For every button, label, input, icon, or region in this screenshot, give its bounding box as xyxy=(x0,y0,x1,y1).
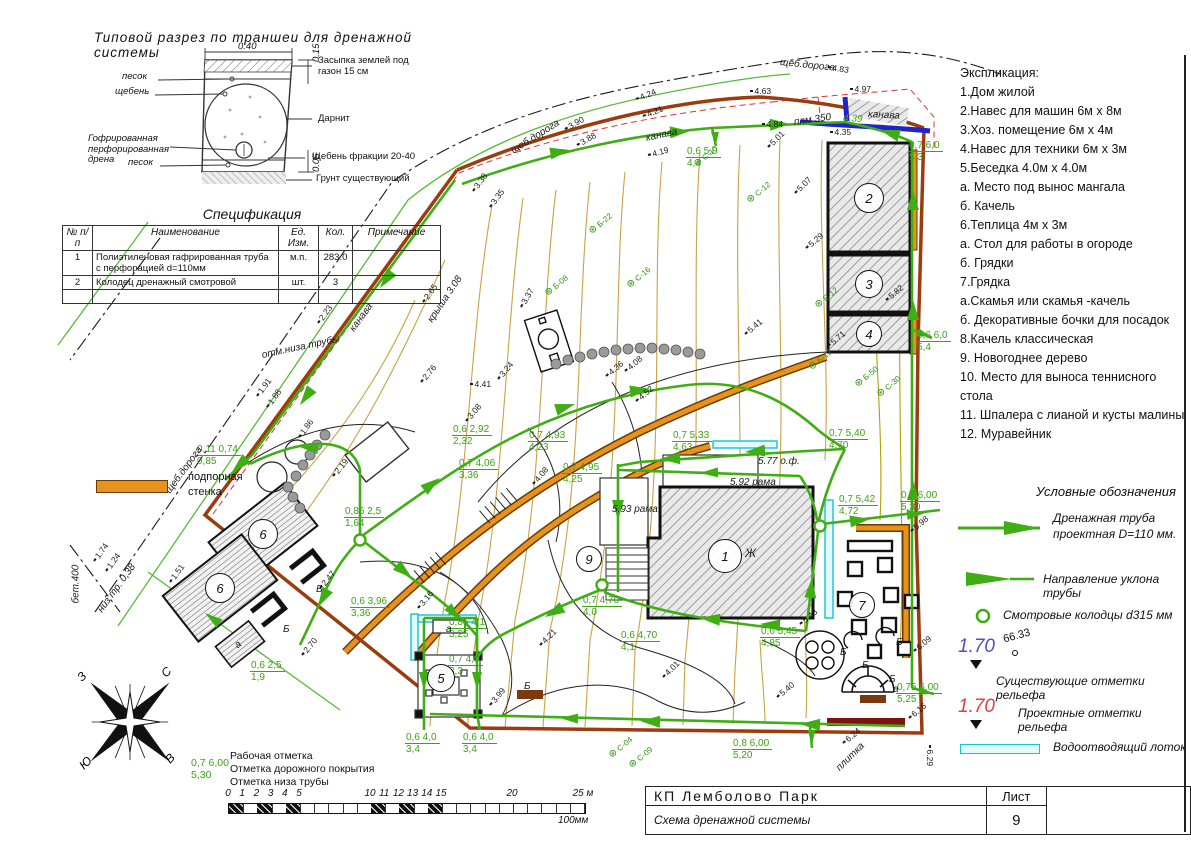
design-mark-arrow xyxy=(970,720,982,729)
explication-item: 10. Место для выноса теннисного стола xyxy=(960,368,1188,406)
spec-cell-empty xyxy=(353,290,441,304)
explication-item: 2.Навес для машин 6м х 8м xyxy=(960,102,1188,121)
scale-cell xyxy=(314,804,329,813)
scale-cell xyxy=(371,804,386,813)
scale-cell xyxy=(286,804,301,813)
drawing-title: Схема дренажной системы xyxy=(646,806,987,835)
spec-cell-empty xyxy=(279,290,319,304)
compass-west: З xyxy=(74,669,90,685)
existing-mark-label: Существующие отметки рельефа xyxy=(996,674,1188,702)
trench-section: Типовой разрез по траншеи для дренажной … xyxy=(60,22,480,222)
spec-row: 2Колодец дренажный смотровойшт.3 xyxy=(63,276,441,290)
classic-swing xyxy=(842,666,894,692)
spec-col-note: Примечание xyxy=(353,226,441,251)
water-tray-label: Водоотводящий лоток xyxy=(1053,740,1186,754)
dim-040: 0.40 xyxy=(238,42,257,53)
sheet-word: Лист xyxy=(986,787,1046,806)
explication-item: 5.Беседка 4.0м х 4.0м xyxy=(960,159,1188,178)
explication-item: 1.Дом жилой xyxy=(960,83,1188,102)
explication-item: 11. Шпалера с лианой и кусты малины xyxy=(960,406,1188,425)
explication-item: 7.Грядка xyxy=(960,273,1188,292)
slope-direction-label: Направление уклона трубы xyxy=(1043,572,1188,600)
scale-tick-label: 0 xyxy=(225,788,231,799)
scale-tick-label: 25 м xyxy=(573,788,594,799)
scale-cell xyxy=(357,804,372,813)
drain-pipe-label: Дренажная труба проектная D=110 мм. xyxy=(1053,510,1178,542)
spec-col-unit: Ед. Изм. xyxy=(279,226,319,251)
scale-tick-label: 5 xyxy=(296,788,302,799)
compass-south: Ю xyxy=(76,754,95,773)
scale-tick-label: 13 xyxy=(407,788,418,799)
legend: Условные обозначения Дренажная труба про… xyxy=(948,478,1188,778)
design-mark-value: 1.70 xyxy=(958,696,995,718)
specification: Спецификация № п/п Наименование Ед. Изм.… xyxy=(62,206,442,304)
scale-cell xyxy=(442,804,457,813)
scale-tick-label: 10 xyxy=(364,788,375,799)
explication: Экспликация: 1.Дом жилой2.Навес для маши… xyxy=(960,64,1188,444)
inspection-well-icon xyxy=(973,606,993,626)
legend-title: Условные обозначения xyxy=(1036,484,1176,499)
explication-item: 9. Новогоднее дерево xyxy=(960,349,1188,368)
explication-item: б. Декоративные бочки для посадок xyxy=(960,311,1188,330)
scale-cell xyxy=(485,804,500,813)
scale-cell xyxy=(257,804,272,813)
scale-tick-label: 4 xyxy=(282,788,288,799)
scale-bar: 0123451011121314152025 м 100мм xyxy=(228,788,608,832)
explication-item: а. Место под вынос мангала xyxy=(960,178,1188,197)
project-name: КП Лемболово Парк xyxy=(646,787,987,806)
scale-cell xyxy=(541,804,556,813)
label-backfill: Засыпка землей под газон 15 см xyxy=(318,56,423,77)
scale-cell xyxy=(513,804,528,813)
scale-tick-label: 15 xyxy=(435,788,446,799)
spec-cell-name: Колодец дренажный смотровой xyxy=(93,276,279,290)
explication-item: 3.Хоз. помещение 6м х 4м xyxy=(960,121,1188,140)
slope-direction-icon xyxy=(966,570,1036,588)
explication-item: 12. Муравейник xyxy=(960,425,1188,444)
spec-table: № п/п Наименование Ед. Изм. Кол. Примеча… xyxy=(62,225,441,304)
explication-item: а. Стол для работы в огороде xyxy=(960,235,1188,254)
scale-cell xyxy=(556,804,571,813)
scale-tick-label: 1 xyxy=(239,788,245,799)
spec-header-row: № п/п Наименование Ед. Изм. Кол. Примеча… xyxy=(63,226,441,251)
explication-item: б. Грядки xyxy=(960,254,1188,273)
existing-mark-arrow xyxy=(970,660,982,669)
retaining-wall-label: подпорная стенка xyxy=(188,470,268,500)
explication-item: 8.Качель классическая xyxy=(960,330,1188,349)
scale-cell xyxy=(428,804,443,813)
spec-cell-qty: 283.0 xyxy=(319,251,353,276)
scale-tick-label: 2 xyxy=(254,788,260,799)
label-sand-top: песок xyxy=(122,72,147,83)
explication-item: 4.Навес для техники 6м х 3м xyxy=(960,140,1188,159)
spec-col-num: № п/п xyxy=(63,226,93,251)
spec-cell-note xyxy=(353,251,441,276)
sheet-number: 9 xyxy=(986,806,1046,835)
scale-cell xyxy=(527,804,542,813)
scale-cell xyxy=(272,804,287,813)
spec-col-qty: Кол. xyxy=(319,226,353,251)
scale-tick-label: 20 xyxy=(506,788,517,799)
scale-cell xyxy=(570,804,585,813)
spec-cell-empty xyxy=(93,290,279,304)
scale-cell xyxy=(414,804,429,813)
spec-title: Спецификация xyxy=(62,206,442,222)
title-block-empty-cell xyxy=(1046,787,1190,835)
scale-cell xyxy=(499,804,514,813)
scale-tick-label: 3 xyxy=(268,788,274,799)
label-gravel: щебень xyxy=(115,87,149,98)
scale-cell xyxy=(399,804,414,813)
explication-item: а.Скамья или скамья -качель xyxy=(960,292,1188,311)
spec-cell-unit: м.п. xyxy=(279,251,319,276)
spec-cell-empty xyxy=(319,290,353,304)
existing-spot-dot xyxy=(1012,650,1018,656)
label-gravel-fraction: Щебень фракции 20-40 xyxy=(312,152,415,163)
design-mark-label: Проектные отметки рельефа xyxy=(1018,706,1188,734)
water-tray-icon xyxy=(960,744,1040,754)
note-line1: Рабочая отметка xyxy=(230,750,313,762)
label-sand-bottom: песок xyxy=(128,158,153,169)
existing-mark-value: 1.70 xyxy=(958,636,995,658)
compass-east: В xyxy=(162,751,178,767)
label-dornit: Дарнит xyxy=(318,114,350,125)
explication-title: Экспликация: xyxy=(960,64,1188,83)
explication-item: б. Качель xyxy=(960,197,1188,216)
scale-cells xyxy=(228,803,586,814)
spec-cell-name: Полиэтиленовая гафрированная труба с пер… xyxy=(93,251,279,276)
spec-cell-empty xyxy=(63,290,93,304)
spec-row: 1Полиэтиленовая гафрированная труба с пе… xyxy=(63,251,441,276)
spec-cell-unit: шт. xyxy=(279,276,319,290)
scale-cell xyxy=(343,804,358,813)
scale-cell xyxy=(470,804,485,813)
note-line2: Отметка дорожного покрытия xyxy=(230,763,375,775)
explication-item: 6.Теплица 4м х 3м xyxy=(960,216,1188,235)
spec-col-name: Наименование xyxy=(93,226,279,251)
scale-caption: 100мм xyxy=(558,815,588,826)
existing-spot-value: 66.33 xyxy=(1002,627,1032,646)
drawing-sheet: 0,11 0,740,850,86 2,51,640,6 2,51,90,6 3… xyxy=(0,0,1191,842)
scale-cell xyxy=(229,804,244,813)
compass-north: С xyxy=(158,664,174,680)
scale-cell xyxy=(328,804,343,813)
note-line3: Отметка низа трубы xyxy=(230,776,329,788)
title-block: КП Лемболово Парк Лист Схема дренажной с… xyxy=(645,786,1191,835)
spec-cell-note xyxy=(353,276,441,290)
scale-cell xyxy=(456,804,471,813)
scale-cell xyxy=(385,804,400,813)
title-block-table: КП Лемболово Парк Лист Схема дренажной с… xyxy=(645,786,1191,835)
scale-cell xyxy=(300,804,315,813)
spec-cell-qty: 3 xyxy=(319,276,353,290)
inspection-well-label: Смотровые колодцы d315 мм xyxy=(1003,608,1173,622)
spec-cell-n: 1 xyxy=(63,251,93,276)
spec-row-empty xyxy=(63,290,441,304)
scale-cell xyxy=(243,804,258,813)
scale-tick-label: 11 xyxy=(379,788,389,799)
scale-tick-label: 14 xyxy=(421,788,432,799)
sheet-frame-right xyxy=(1184,55,1186,832)
drain-pipe-icon xyxy=(958,518,1043,538)
compass-rose: С В Ю З xyxy=(58,652,206,800)
spec-cell-n: 2 xyxy=(63,276,93,290)
scale-tick-label: 12 xyxy=(393,788,404,799)
retaining-wall-icon xyxy=(96,480,168,493)
label-existing-soil: Грунт существующий xyxy=(316,174,410,185)
